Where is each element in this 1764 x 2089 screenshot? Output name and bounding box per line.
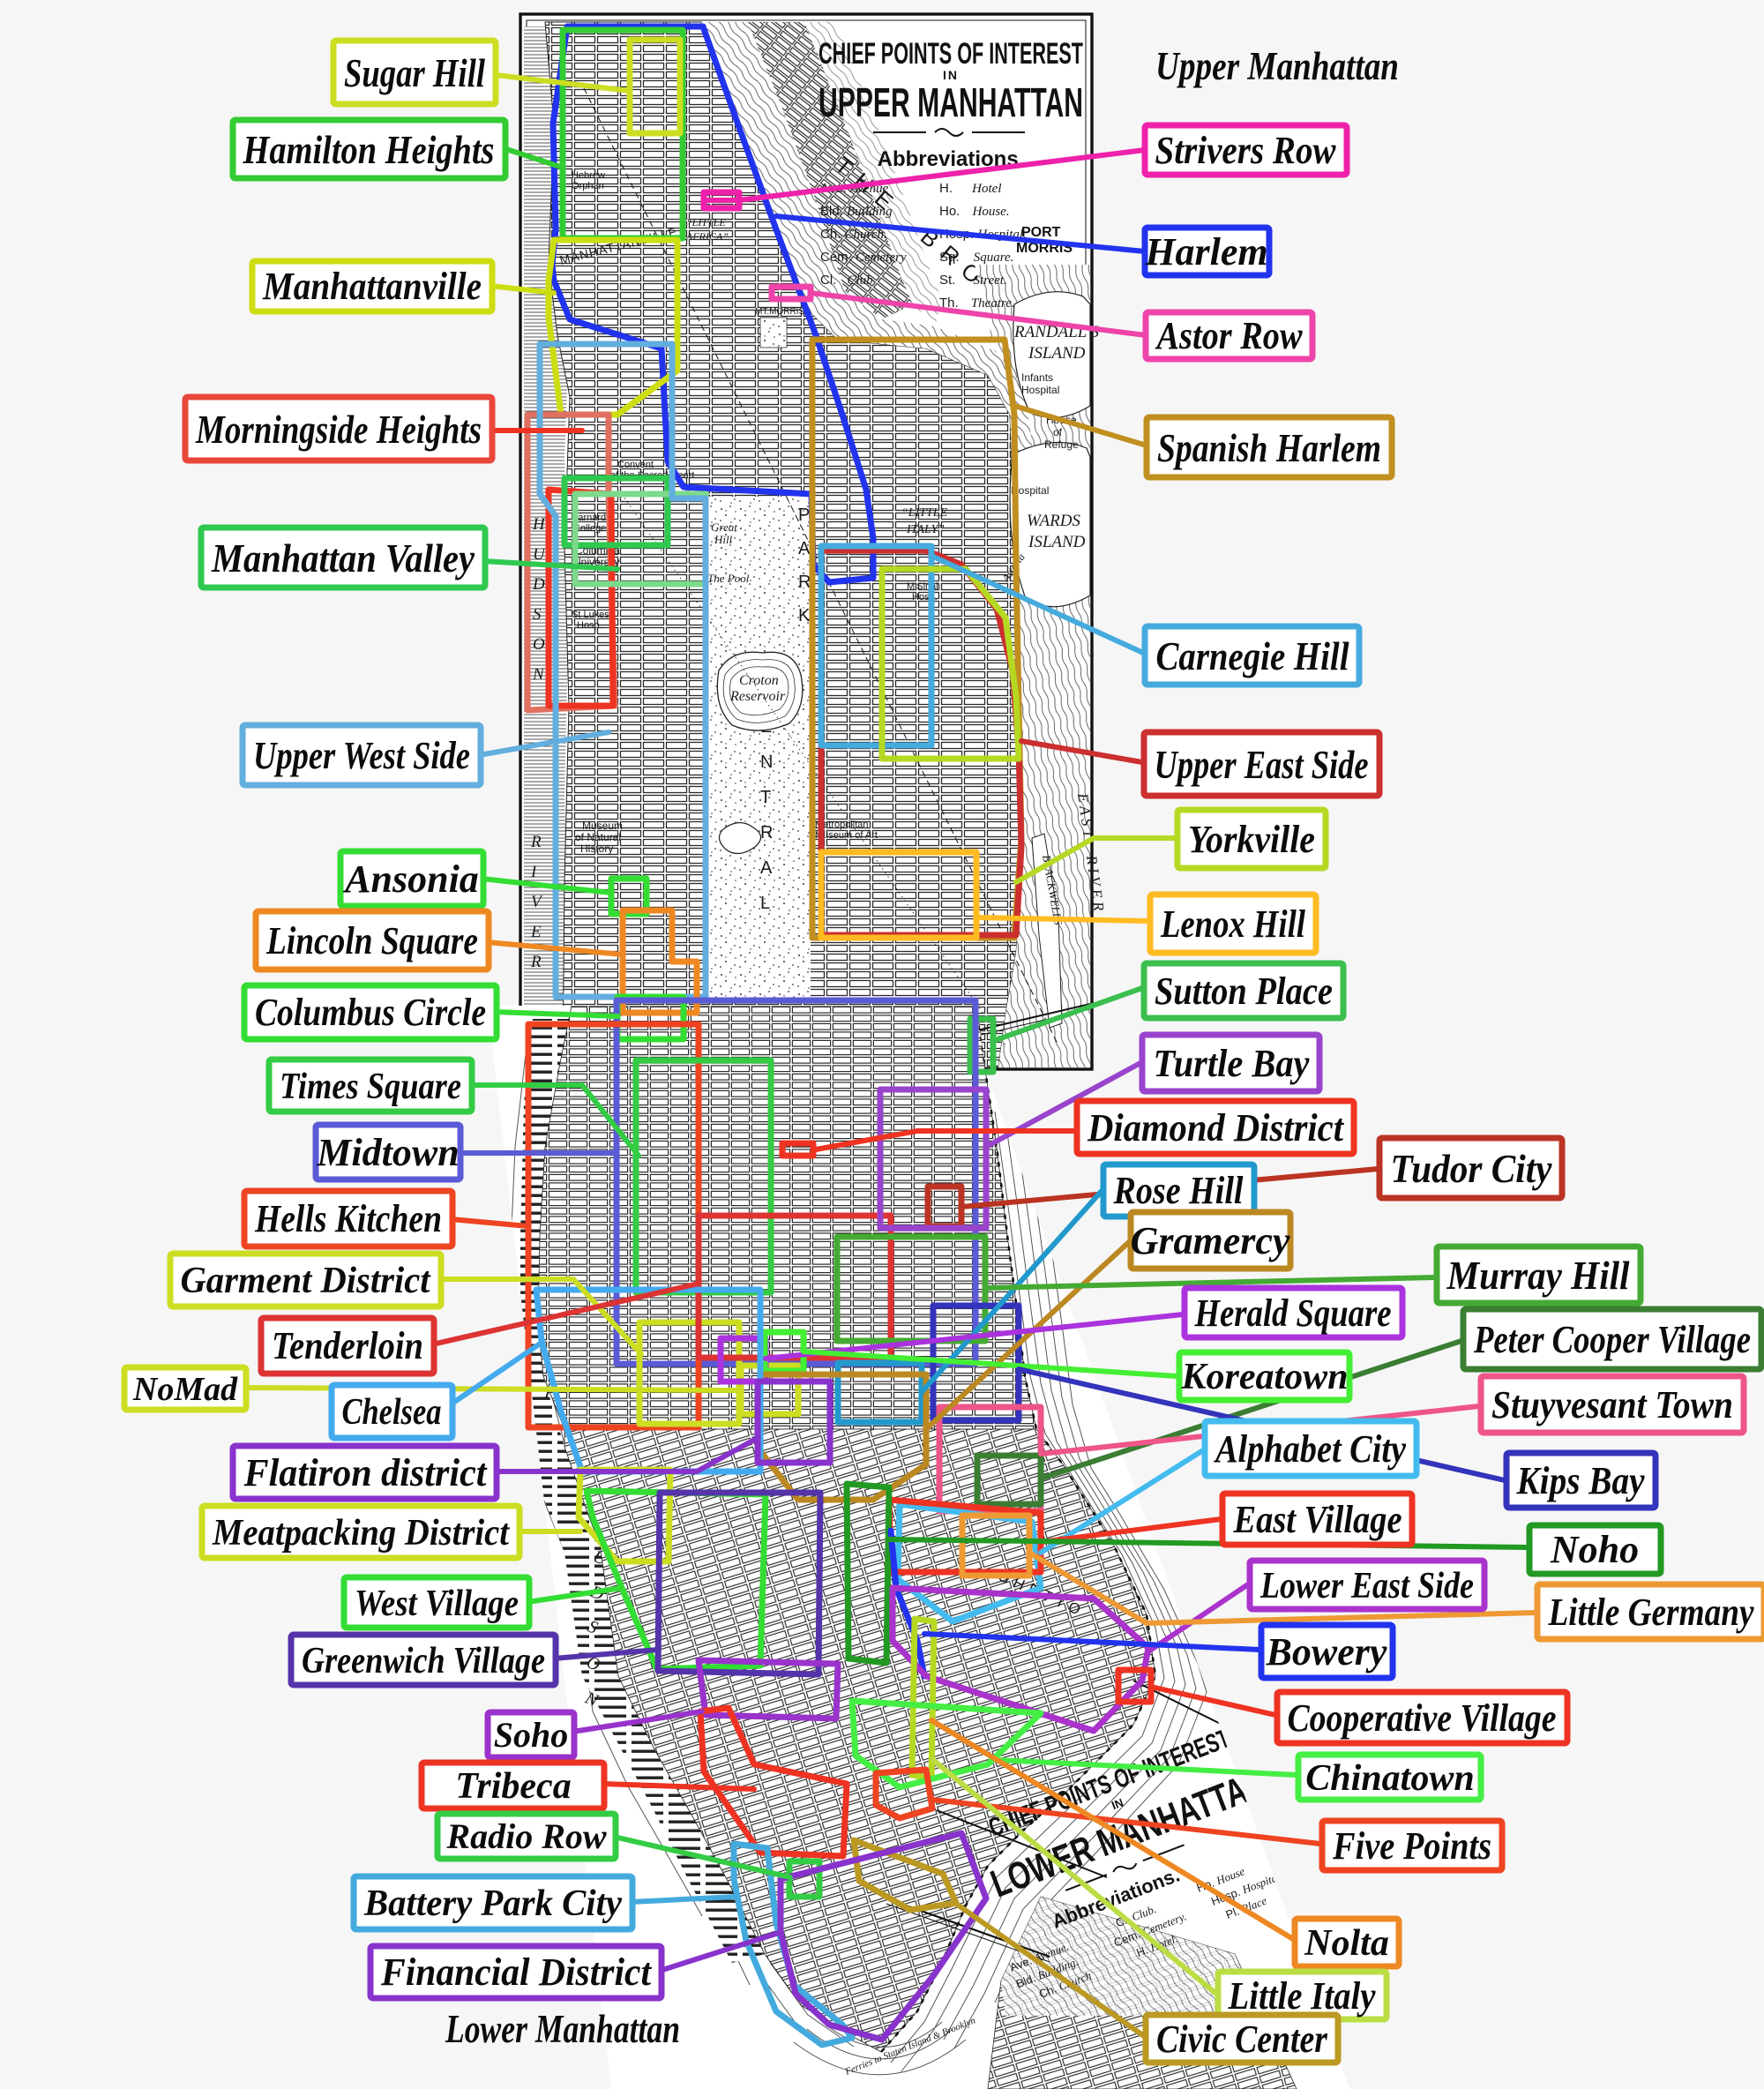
svg-text:Morningside Heights: Morningside Heights — [195, 407, 482, 452]
svg-text:Flatiron district: Flatiron district — [243, 1451, 489, 1494]
svg-text:Cooperative Village: Cooperative Village — [1288, 1696, 1557, 1740]
svg-text:Museum of Art: Museum of Art — [815, 830, 878, 841]
svg-text:Convent: Convent — [617, 460, 654, 470]
svg-text:Garment District: Garment District — [181, 1261, 431, 1301]
svg-text:MT.MORRIS: MT.MORRIS — [755, 307, 804, 317]
svg-text:“LITTLE: “LITTLE — [686, 216, 726, 228]
svg-text:CHIEF POINTS OF INTEREST: CHIEF POINTS OF INTEREST — [818, 37, 1083, 71]
svg-text:Hospital: Hospital — [1021, 384, 1059, 396]
svg-text:Museum: Museum — [582, 820, 623, 832]
svg-text:Alphabet City: Alphabet City — [1213, 1427, 1406, 1471]
svg-text:Manhattan Valley: Manhattan Valley — [211, 535, 475, 580]
svg-text:WARDS: WARDS — [1027, 512, 1080, 530]
svg-text:Turtle Bay: Turtle Bay — [1154, 1042, 1310, 1085]
svg-text:Infants: Infants — [1021, 371, 1053, 384]
svg-text:Radio Row: Radio Row — [445, 1816, 606, 1856]
svg-text:Diamond District: Diamond District — [1087, 1106, 1345, 1149]
svg-text:Tudor City: Tudor City — [1391, 1146, 1553, 1191]
svg-text:Civic Center: Civic Center — [1156, 2018, 1328, 2061]
svg-text:Hells Kitchen: Hells Kitchen — [254, 1197, 442, 1240]
svg-text:Lenox Hill: Lenox Hill — [1160, 902, 1305, 946]
svg-text:Sugar Hill: Sugar Hill — [344, 50, 485, 95]
svg-text:Tenderloin: Tenderloin — [272, 1324, 423, 1367]
svg-text:Sutton Place: Sutton Place — [1155, 970, 1333, 1013]
svg-text:of: of — [1053, 426, 1063, 438]
svg-text:West Village: West Village — [355, 1584, 519, 1624]
svg-text:Hill: Hill — [714, 533, 733, 546]
svg-text:Little Italy: Little Italy — [1228, 1974, 1376, 2018]
svg-text:Greenwich Village: Greenwich Village — [302, 1641, 545, 1681]
svg-text:Spanish Harlem: Spanish Harlem — [1157, 425, 1381, 470]
svg-text:Great: Great — [711, 520, 737, 534]
svg-text:UPPER MANHATTAN: UPPER MANHATTAN — [818, 79, 1083, 125]
svg-text:Noho: Noho — [1550, 1528, 1639, 1571]
svg-text:AFRICA”: AFRICA” — [685, 230, 729, 243]
svg-text:Hosp.: Hosp. — [577, 620, 602, 631]
svg-text:Carnegie Hill: Carnegie Hill — [1156, 633, 1349, 678]
svg-text:Five Points: Five Points — [1332, 1824, 1491, 1868]
svg-text:Koreatown: Koreatown — [1180, 1357, 1348, 1397]
svg-text:ISLAND: ISLAND — [1028, 533, 1086, 551]
svg-text:Strivers Row: Strivers Row — [1155, 129, 1337, 172]
svg-text:East Village: East Village — [1233, 1498, 1402, 1541]
svg-text:Murray Hill: Murray Hill — [1446, 1253, 1630, 1298]
svg-text:Chelsea: Chelsea — [342, 1392, 442, 1433]
svg-text:Columbus Circle: Columbus Circle — [255, 991, 486, 1034]
svg-text:Nolta: Nolta — [1304, 1923, 1389, 1964]
svg-text:Herald Square: Herald Square — [1194, 1292, 1392, 1335]
svg-text:Meatpacking District: Meatpacking District — [212, 1513, 510, 1554]
svg-text:Ho. House.: Ho. House. — [939, 204, 1010, 219]
svg-text:Stuyvesant Town: Stuyvesant Town — [1491, 1383, 1733, 1426]
svg-text:Astor Row: Astor Row — [1155, 314, 1303, 357]
svg-text:Orphan: Orphan — [572, 181, 604, 191]
svg-text:ISLAND: ISLAND — [1028, 344, 1086, 363]
svg-text:Croton: Croton — [739, 673, 779, 688]
svg-text:Midtown: Midtown — [316, 1131, 459, 1174]
svg-text:Upper West Side: Upper West Side — [253, 734, 470, 777]
svg-text:Battery Park City: Battery Park City — [363, 1883, 622, 1924]
svg-text:Cem. Cemetery: Cem. Cemetery — [820, 250, 907, 265]
svg-text:Refuge: Refuge — [1044, 438, 1079, 451]
svg-text:Sq. Square.: Sq. Square. — [939, 250, 1013, 265]
svg-text:Hamilton Heights: Hamilton Heights — [243, 127, 495, 172]
svg-text:The Pool: The Pool — [707, 572, 750, 585]
svg-text:NoMad: NoMad — [132, 1371, 238, 1408]
svg-text:Lower Manhattan: Lower Manhattan — [445, 2007, 680, 2051]
svg-text:Lincoln Square: Lincoln Square — [265, 919, 478, 962]
svg-text:Upper Manhattan: Upper Manhattan — [1155, 44, 1399, 88]
svg-text:Bowery: Bowery — [1266, 1630, 1387, 1673]
svg-text:Hebrew: Hebrew — [572, 170, 605, 181]
svg-text:History: History — [580, 842, 613, 855]
svg-text:College: College — [573, 523, 606, 534]
svg-text:Chinatown: Chinatown — [1305, 1758, 1474, 1799]
svg-text:ITALY”: ITALY” — [906, 523, 945, 536]
svg-text:Times Square: Times Square — [280, 1067, 461, 1107]
svg-text:Kips Bay: Kips Bay — [1516, 1459, 1645, 1502]
svg-text:Financial District: Financial District — [380, 1950, 653, 1994]
svg-text:Tribeca: Tribeca — [455, 1766, 571, 1807]
svg-text:Bld. Building: Bld. Building — [820, 204, 893, 219]
svg-text:Lower East Side: Lower East Side — [1259, 1566, 1474, 1606]
svg-text:St. Street.: St. Street. — [939, 273, 1007, 288]
svg-text:Manhattanville: Manhattanville — [262, 265, 482, 308]
svg-text:of Natural: of Natural — [575, 831, 621, 843]
svg-text:Harlem: Harlem — [1144, 230, 1267, 273]
svg-text:Rose Hill: Rose Hill — [1113, 1169, 1245, 1212]
svg-text:Ansonia: Ansonia — [342, 857, 479, 901]
svg-text:Peter Cooper Village: Peter Cooper Village — [1473, 1318, 1751, 1361]
svg-text:Gramercy: Gramercy — [1131, 1219, 1290, 1262]
svg-text:Reservoir: Reservoir — [729, 689, 786, 704]
svg-text:Cl. Club: Cl. Club — [820, 273, 873, 288]
svg-text:Ch. Church.: Ch. Church. — [820, 227, 887, 242]
svg-text:Yorkville: Yorkville — [1188, 818, 1315, 861]
svg-text:“LITTLE: “LITTLE — [901, 506, 948, 520]
svg-text:Little Germany: Little Germany — [1548, 1591, 1754, 1634]
svg-text:St Lukes: St Lukes — [572, 610, 609, 620]
svg-text:Upper East Side: Upper East Side — [1155, 742, 1369, 787]
svg-text:Soho: Soho — [494, 1715, 569, 1755]
